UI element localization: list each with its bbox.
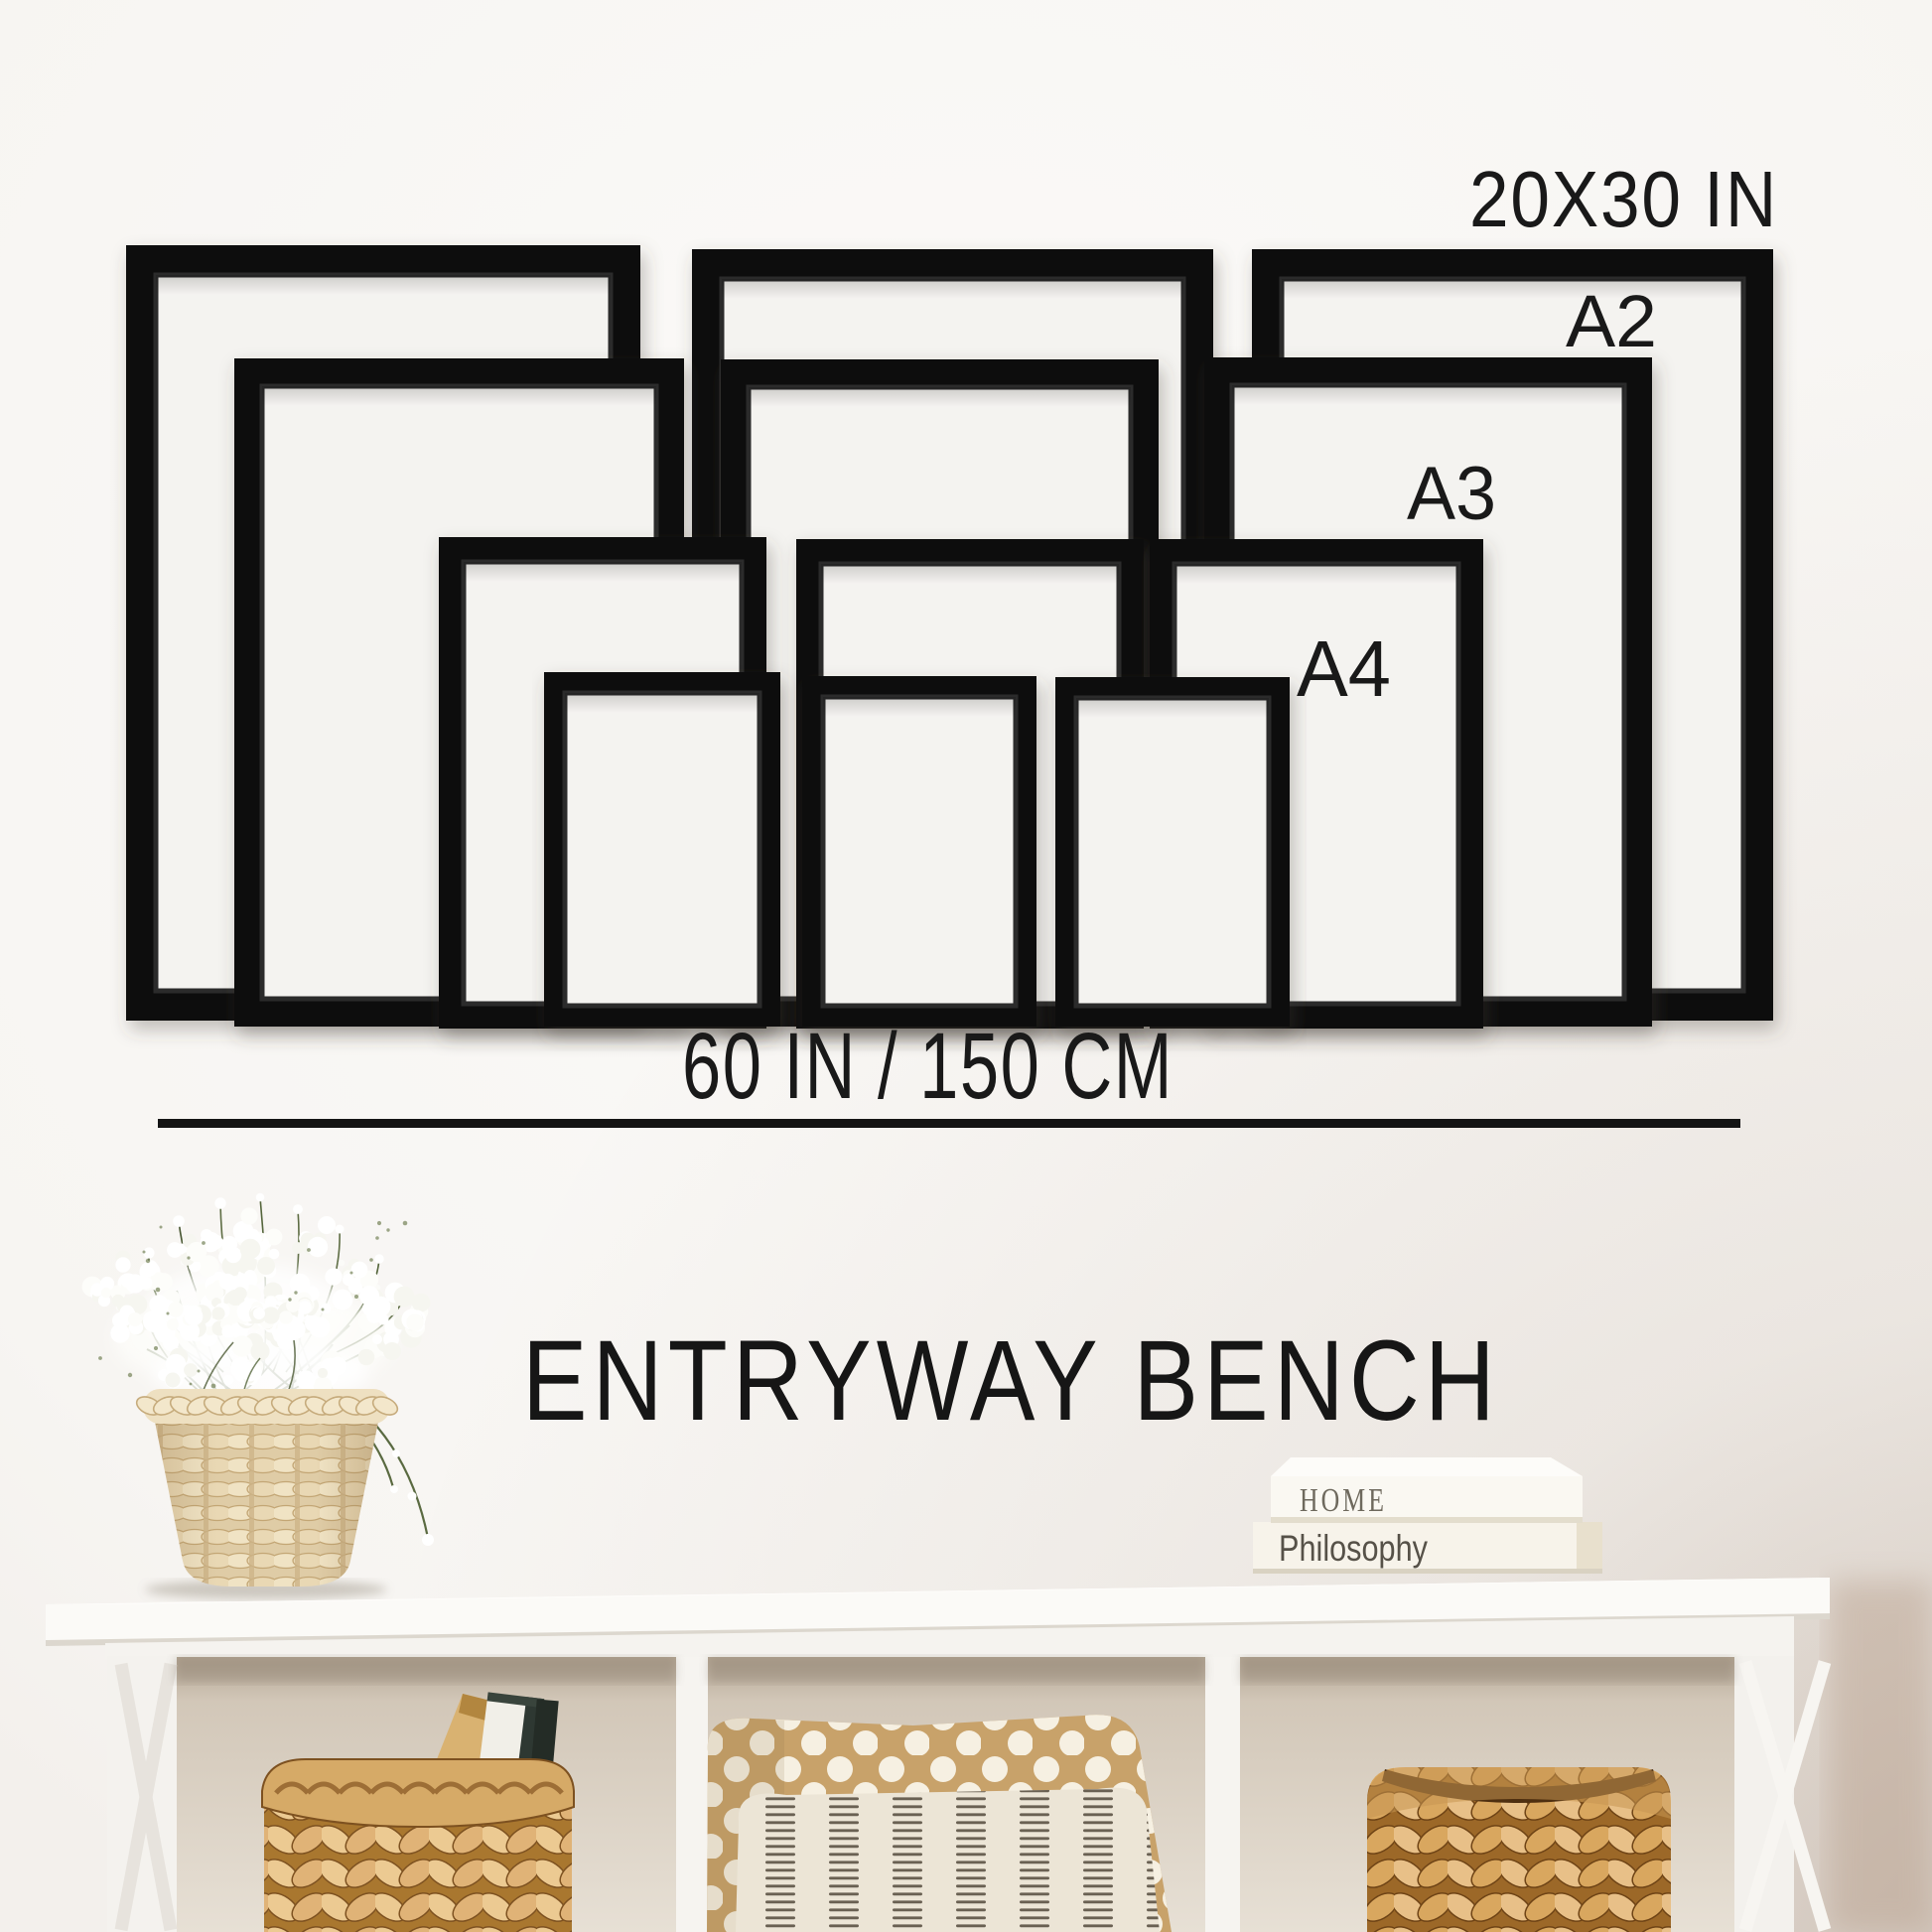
svg-text:Philosophy: Philosophy — [1279, 1528, 1428, 1569]
svg-text:A2: A2 — [1566, 280, 1657, 362]
svg-text:60 IN / 150 CM: 60 IN / 150 CM — [682, 1014, 1173, 1119]
svg-text:HOME: HOME — [1300, 1482, 1387, 1519]
svg-text:ENTRYWAY BENCH: ENTRYWAY BENCH — [522, 1317, 1500, 1445]
svg-text:A3: A3 — [1407, 452, 1496, 536]
svg-text:A4: A4 — [1297, 624, 1391, 713]
svg-text:20X30 IN: 20X30 IN — [1469, 155, 1778, 243]
